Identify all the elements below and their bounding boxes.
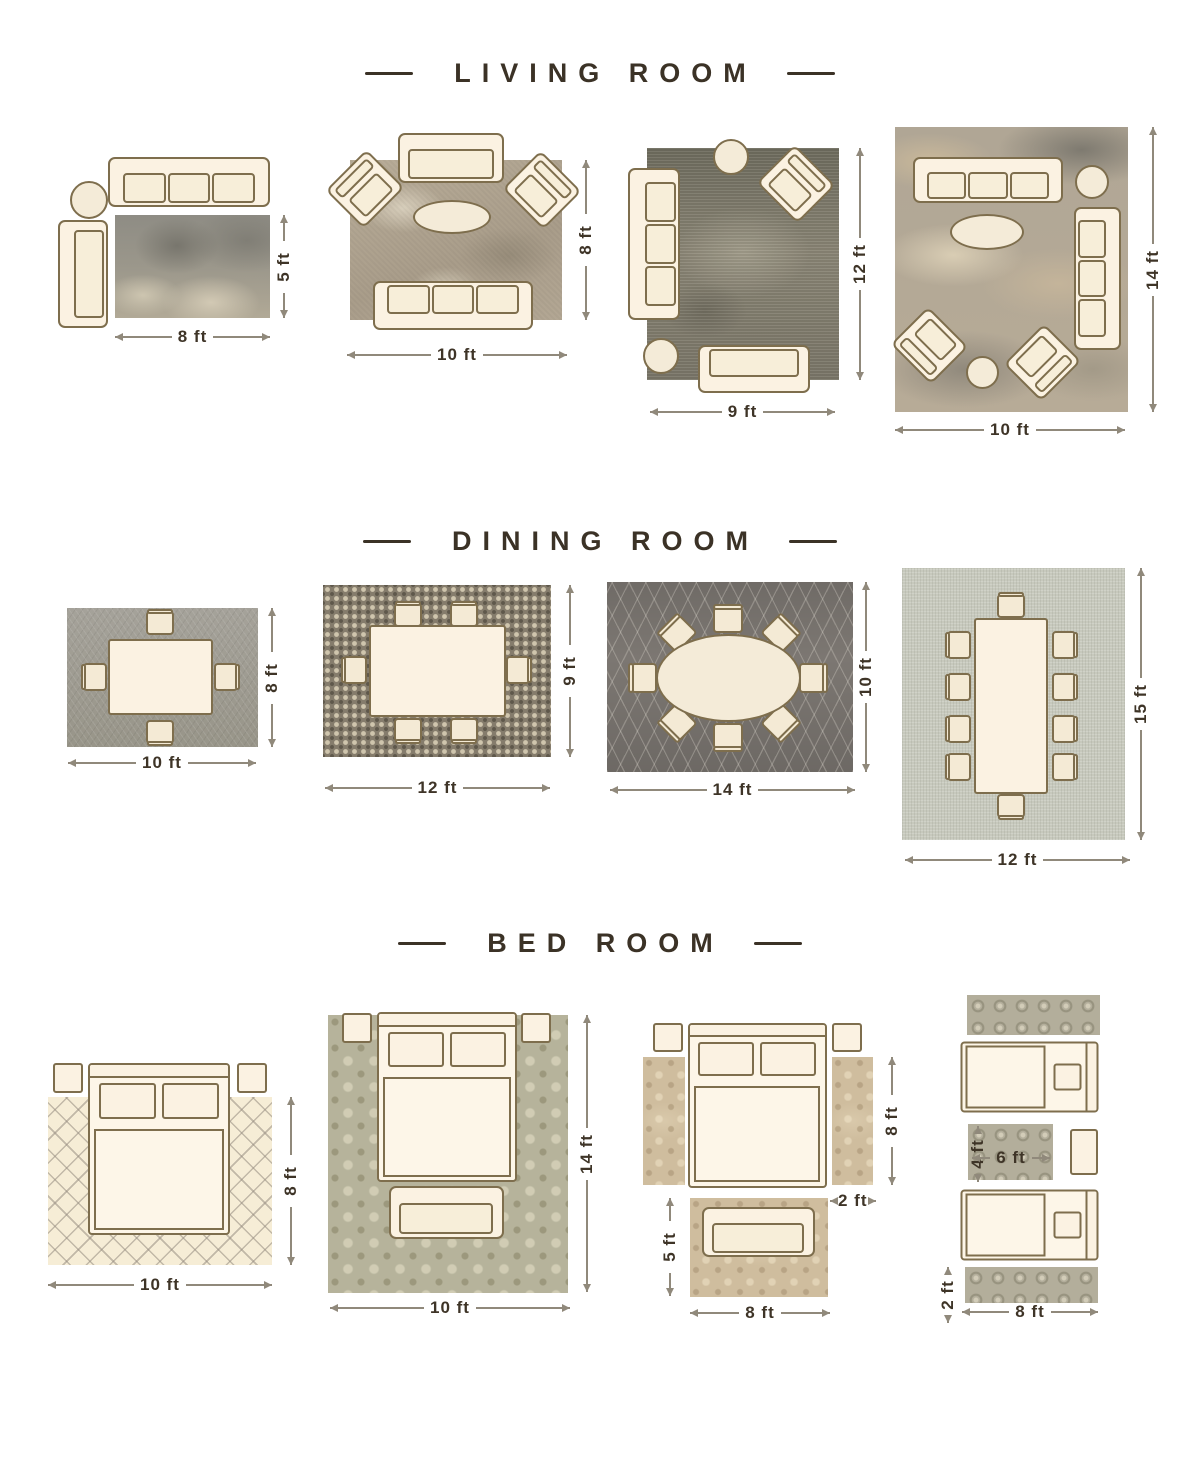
dim-arrow-line	[271, 608, 273, 652]
bench	[389, 1186, 504, 1239]
oval-coffee-table	[413, 200, 491, 234]
bed-room-twin-beds-runners: 4 ft6 ft2 ft8 ft	[940, 985, 1180, 1330]
dimension-5-ft: 5 ft	[275, 215, 293, 318]
cushion	[408, 149, 494, 178]
cushion	[123, 173, 166, 202]
dimension-10-ft: 10 ft	[68, 754, 256, 772]
dining-table	[108, 639, 213, 715]
dim-arrow-line	[1140, 730, 1142, 840]
dining-chair	[997, 594, 1025, 618]
dimension-12-ft: 12 ft	[851, 148, 869, 380]
nightstand	[832, 1023, 862, 1052]
dim-arrow-line	[865, 703, 867, 772]
headboard	[690, 1025, 825, 1038]
dim-arrow-line	[569, 697, 571, 757]
dim-arrow-line	[781, 1312, 830, 1314]
dining-chair	[713, 607, 743, 633]
dim-arrow-line	[1140, 568, 1142, 678]
loveseat	[698, 345, 810, 393]
living-room-rug-8x5: 8 ft5 ft	[45, 130, 320, 360]
settee	[58, 220, 108, 328]
dim-arrow-line	[905, 859, 992, 861]
cushion	[1010, 172, 1050, 199]
pillow	[698, 1042, 754, 1076]
section-header-dining-room: DINING ROOM	[0, 526, 1200, 557]
dim-arrow-line	[947, 1321, 949, 1323]
dining-chair	[997, 794, 1025, 818]
dim-arrow-line	[962, 1311, 1009, 1313]
dim-arrow-line	[1152, 296, 1154, 413]
dining-chair	[799, 663, 825, 693]
sofa-three-seat	[628, 168, 680, 320]
cushions	[399, 1203, 492, 1234]
dining-chair	[506, 656, 530, 684]
dim-label: 12 ft	[998, 850, 1038, 870]
dimension-10-ft: 10 ft	[48, 1276, 272, 1294]
dim-label: 10 ft	[140, 1275, 180, 1295]
dim-arrow-line	[1152, 127, 1154, 244]
dim-arrow-line	[115, 336, 172, 338]
dimension-15-ft: 15 ft	[1132, 568, 1150, 840]
dim-arrow-line	[977, 1126, 979, 1128]
dim-arrow-line	[476, 1307, 570, 1309]
pillow	[99, 1083, 156, 1118]
dimension-10-ft: 10 ft	[347, 346, 567, 364]
dining-chair	[343, 656, 367, 684]
dining-chair	[83, 663, 107, 691]
sofa-three-seat	[373, 281, 533, 330]
dining-room-rug-12x15: 15 ft12 ft	[895, 560, 1185, 890]
dim-label: 6 ft	[996, 1148, 1026, 1168]
dim-arrow-line	[283, 293, 285, 319]
dining-chair	[146, 720, 174, 744]
dining-chair	[1052, 753, 1076, 781]
loveseat	[398, 133, 504, 183]
pillow-zone	[386, 1032, 508, 1067]
dimension-10-ft: 10 ft	[330, 1299, 570, 1317]
dim-label: 8 ft	[281, 1166, 301, 1196]
cushion	[399, 1203, 492, 1234]
dim-label: 10 ft	[142, 753, 182, 773]
cushion	[432, 285, 474, 314]
cushions	[74, 230, 103, 317]
cushion	[709, 349, 800, 377]
dining-chair	[1052, 715, 1076, 743]
dim-arrow-line	[188, 762, 256, 764]
pillow	[1053, 1211, 1081, 1239]
cushion	[1078, 259, 1106, 297]
nightstand	[1070, 1129, 1098, 1175]
runner-rug	[832, 1057, 873, 1185]
bed-room-rug-10x8: 8 ft10 ft	[30, 1040, 320, 1305]
cushion	[74, 230, 103, 317]
pillow-zone	[97, 1083, 221, 1118]
dining-chair	[947, 673, 971, 701]
dining-chair	[450, 603, 478, 627]
dim-arrow-line	[830, 1200, 832, 1202]
header-dash-right	[754, 942, 802, 945]
dim-arrow-line	[669, 1273, 671, 1296]
dim-arrow-line	[186, 1284, 272, 1286]
dim-label: 10 ft	[856, 657, 876, 697]
section-title-living-room: LIVING ROOM	[443, 58, 757, 89]
dim-label: 8 ft	[882, 1106, 902, 1136]
dining-chair	[947, 753, 971, 781]
cushions	[645, 182, 676, 306]
cushion	[645, 266, 676, 306]
cushion	[645, 182, 676, 222]
cushion	[387, 285, 429, 314]
header-dash-right	[787, 72, 835, 75]
dining-chair	[947, 715, 971, 743]
dim-label: 10 ft	[437, 345, 477, 365]
dimension-8-ft: 8 ft	[115, 328, 270, 346]
bed-room-runners-and-foot-rug: 8 ft2 ft5 ft8 ft	[630, 1000, 920, 1330]
nightstand	[653, 1023, 683, 1052]
dining-table	[974, 618, 1048, 794]
dim-arrow-line	[690, 1312, 739, 1314]
dim-arrow-line	[271, 704, 273, 748]
rug-size-guide: LIVING ROOM DINING ROOM BED ROOM 8 ft5 f…	[0, 0, 1200, 1467]
dimension-5-ft: 5 ft	[661, 1198, 679, 1296]
pillow-zone	[696, 1042, 818, 1076]
nightstand	[521, 1013, 551, 1043]
blanket	[965, 1046, 1045, 1109]
dim-arrow-line	[891, 1057, 893, 1095]
cushion	[927, 172, 967, 199]
dim-label: 12 ft	[850, 244, 870, 284]
dimension-9-ft: 9 ft	[561, 585, 579, 757]
dim-arrow-line	[585, 266, 587, 320]
headboard	[379, 1014, 515, 1027]
sofa-three-seat	[108, 157, 270, 207]
section-title-bed-room: BED ROOM	[476, 928, 724, 959]
dim-arrow-line	[1032, 1157, 1050, 1159]
dimension-8-ft: 8 ft	[577, 160, 595, 320]
header-dash-right	[789, 540, 837, 543]
cushions	[927, 172, 1050, 199]
dim-arrow-line	[865, 582, 867, 651]
cushions	[712, 1223, 804, 1252]
area-rug	[115, 215, 270, 318]
dim-arrow-line	[290, 1097, 292, 1155]
dining-chair	[1052, 673, 1076, 701]
cushions	[408, 149, 494, 178]
dim-arrow-line	[585, 160, 587, 214]
dim-label: 5 ft	[274, 252, 294, 282]
dining-chair	[713, 723, 743, 749]
living-room-rug-10x8: 10 ft8 ft	[335, 120, 615, 385]
dim-arrow-line	[463, 787, 550, 789]
dim-label: 2 ft	[938, 1280, 958, 1310]
dim-label: 8 ft	[178, 327, 208, 347]
bed-room-rug-10x14: 14 ft10 ft	[310, 1000, 610, 1330]
dim-arrow-line	[1043, 859, 1130, 861]
runner-rug	[643, 1057, 685, 1185]
dim-arrow-line	[48, 1284, 134, 1286]
blanket	[383, 1077, 511, 1177]
section-header-bed-room: BED ROOM	[0, 928, 1200, 959]
dim-label: 14 ft	[577, 1134, 597, 1174]
cushion	[645, 224, 676, 264]
bench	[702, 1207, 815, 1257]
cushion	[968, 172, 1008, 199]
dimension-8-ft: 8 ft	[263, 608, 281, 747]
dim-arrow-line	[347, 354, 431, 356]
headboard	[1085, 1192, 1096, 1259]
blanket	[94, 1129, 224, 1230]
round-side-table	[643, 338, 679, 374]
twin-bed	[960, 1042, 1098, 1113]
header-dash-left	[363, 540, 411, 543]
dimension-12-ft: 12 ft	[325, 779, 550, 797]
dim-arrow-line	[1036, 429, 1125, 431]
dimension-8-ft: 8 ft	[690, 1304, 830, 1322]
queen-bed	[377, 1012, 517, 1182]
dim-arrow-line	[972, 1157, 990, 1159]
twin-bed	[960, 1190, 1098, 1261]
runner-rug	[967, 995, 1100, 1035]
nightstand	[237, 1063, 267, 1093]
dim-arrow-line	[891, 1147, 893, 1185]
dim-arrow-line	[330, 1307, 424, 1309]
dim-arrow-line	[290, 1207, 292, 1265]
cushion	[168, 173, 211, 202]
sofa-three-seat	[913, 157, 1063, 203]
dining-chair	[450, 718, 478, 742]
dimension-14-ft: 14 ft	[610, 781, 855, 799]
dim-arrow-line	[483, 354, 567, 356]
section-title-dining-room: DINING ROOM	[441, 526, 759, 557]
dim-label: 8 ft	[262, 663, 282, 693]
header-dash-left	[365, 72, 413, 75]
dim-arrow-line	[859, 148, 861, 238]
headboard	[1085, 1044, 1096, 1111]
dim-arrow-line	[669, 1198, 671, 1221]
dining-chair	[214, 663, 238, 691]
dim-arrow-line	[325, 787, 412, 789]
oval-coffee-table	[950, 214, 1024, 250]
dim-arrow-line	[758, 789, 855, 791]
dining-table	[369, 625, 506, 717]
section-header-living-room: LIVING ROOM	[0, 58, 1200, 89]
dim-arrow-line	[586, 1180, 588, 1293]
dim-label: 8 ft	[745, 1303, 775, 1323]
oval-dining-table	[656, 634, 801, 722]
sofa-three-seat	[1074, 207, 1121, 350]
dim-arrow-line	[874, 1200, 876, 1202]
dim-arrow-line	[283, 215, 285, 241]
round-side-table	[966, 356, 999, 389]
runner-rug	[965, 1267, 1098, 1303]
cushions	[123, 173, 256, 202]
round-side-table	[713, 139, 749, 175]
dimension-2-ft: 2 ft	[939, 1267, 957, 1305]
pillow	[1053, 1063, 1081, 1091]
dimension-12-ft: 12 ft	[905, 851, 1130, 869]
living-room-rug-9x12: 12 ft9 ft	[615, 130, 890, 430]
dim-label: 14 ft	[1143, 250, 1163, 290]
dim-arrow-line	[977, 1180, 979, 1182]
dining-chair	[1052, 631, 1076, 659]
cushion	[212, 173, 255, 202]
cushion	[1078, 220, 1106, 258]
dim-label: 10 ft	[990, 420, 1030, 440]
dining-chair	[631, 663, 657, 693]
dimension-2-ft: 2 ft	[830, 1192, 875, 1210]
dimension-6-ft: 6 ft	[972, 1149, 1050, 1167]
cushion	[1078, 299, 1106, 337]
pillow	[388, 1032, 444, 1067]
dimension-10-ft: 10 ft	[895, 421, 1125, 439]
dim-arrow-line	[895, 429, 984, 431]
cushions	[1078, 220, 1106, 337]
dim-arrow-line	[859, 290, 861, 380]
dining-chair	[146, 611, 174, 635]
cushions	[387, 285, 518, 314]
dining-chair	[947, 631, 971, 659]
headboard	[90, 1065, 228, 1078]
dim-label: 14 ft	[713, 780, 753, 800]
dim-label: 5 ft	[660, 1232, 680, 1262]
dimension-8-ft: 8 ft	[282, 1097, 300, 1265]
dim-label: 2 ft	[838, 1191, 868, 1211]
nightstand	[342, 1013, 372, 1043]
queen-bed	[688, 1023, 827, 1188]
dim-arrow-line	[586, 1015, 588, 1128]
round-side-table	[70, 181, 108, 219]
pillow	[450, 1032, 506, 1067]
dining-room-rug-14x10: 10 ft14 ft	[600, 570, 890, 820]
pillow	[162, 1083, 219, 1118]
dim-label: 8 ft	[1015, 1302, 1045, 1322]
dining-chair	[394, 603, 422, 627]
dining-chair	[394, 718, 422, 742]
dimension-8-ft: 8 ft	[883, 1057, 901, 1185]
dimension-14-ft: 14 ft	[578, 1015, 596, 1292]
dim-arrow-line	[68, 762, 136, 764]
dim-label: 10 ft	[430, 1298, 470, 1318]
dim-label: 8 ft	[576, 225, 596, 255]
dim-arrow-line	[947, 1267, 949, 1269]
dimension-10-ft: 10 ft	[857, 582, 875, 772]
cushion	[712, 1223, 804, 1252]
living-room-rug-10x14: 14 ft10 ft	[890, 110, 1190, 450]
dim-label: 9 ft	[560, 656, 580, 686]
dim-arrow-line	[1051, 1311, 1098, 1313]
dimension-8-ft: 8 ft	[962, 1303, 1098, 1321]
blanket	[965, 1194, 1045, 1257]
dining-room-rug-10x8: 8 ft10 ft	[45, 580, 320, 780]
queen-bed	[88, 1063, 230, 1235]
dimension-14-ft: 14 ft	[1144, 127, 1162, 412]
pillow-zone	[1053, 1195, 1081, 1255]
dimension-9-ft: 9 ft	[650, 403, 835, 421]
cushions	[709, 349, 800, 377]
dim-arrow-line	[569, 585, 571, 645]
pillow-zone	[1053, 1047, 1081, 1107]
dim-label: 12 ft	[418, 778, 458, 798]
dim-label: 9 ft	[728, 402, 758, 422]
dining-room-rug-12x9: 9 ft12 ft	[320, 570, 600, 810]
nightstand	[53, 1063, 83, 1093]
dim-arrow-line	[763, 411, 835, 413]
blanket	[694, 1086, 821, 1183]
cushion	[476, 285, 518, 314]
round-side-table	[1075, 165, 1109, 199]
dim-arrow-line	[610, 789, 707, 791]
header-dash-left	[398, 942, 446, 945]
dim-label: 15 ft	[1131, 684, 1151, 724]
pillow	[760, 1042, 816, 1076]
dim-arrow-line	[213, 336, 270, 338]
dim-arrow-line	[650, 411, 722, 413]
